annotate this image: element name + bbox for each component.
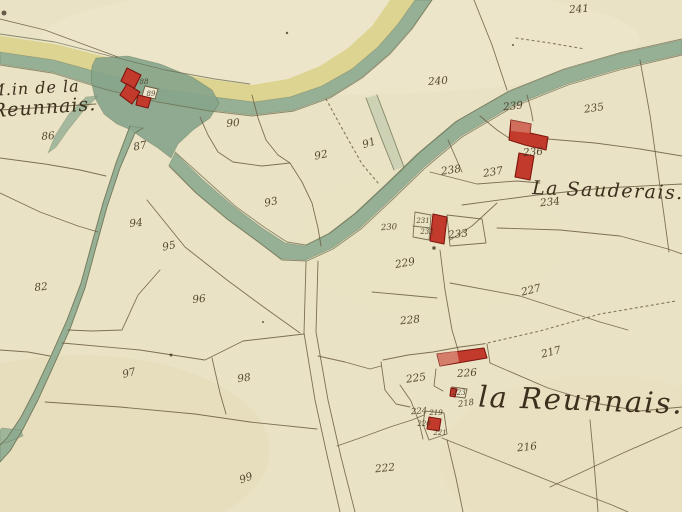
- map-stage: M.in de laReunnais.La Sauderais.la Reunn…: [0, 0, 682, 512]
- parcel-number-231: 231: [415, 217, 429, 225]
- cadastral-map: M.in de laReunnais.La Sauderais.la Reunn…: [0, 0, 682, 512]
- parcel-number-82: 82: [34, 281, 49, 294]
- ink-speck: [170, 354, 173, 357]
- ink-speck: [2, 11, 7, 16]
- parcel-number-89: 89: [147, 90, 156, 98]
- parcel-number-221: 221: [432, 429, 446, 437]
- parcel-number-241: 241: [568, 3, 590, 16]
- parcel-number-98: 98: [237, 371, 252, 385]
- parcel-number-224: 224: [410, 406, 428, 417]
- parcel-number-226: 226: [456, 367, 478, 380]
- parcel-number-96: 96: [192, 293, 207, 306]
- place-label: la Reunnais.: [478, 380, 682, 421]
- parcel-number-233: 233: [446, 227, 468, 241]
- parcel-number-236: 236: [522, 146, 544, 159]
- parcel-number-219: 219: [428, 409, 443, 417]
- ink-speck: [432, 246, 436, 250]
- parcel-number-216: 216: [515, 440, 537, 454]
- parcel-number-87: 87: [132, 139, 148, 153]
- parcel-number-222: 222: [373, 461, 395, 475]
- parcel-number-234: 234: [538, 195, 560, 209]
- ink-speck: [286, 32, 288, 34]
- parcel-number-232: 232: [419, 228, 434, 236]
- parcel-number-88: 88: [140, 78, 149, 86]
- parcel-number-94: 94: [129, 217, 144, 230]
- parcel-number-223: 223: [451, 389, 466, 397]
- parcel-number-90: 90: [226, 117, 240, 130]
- ink-speck: [512, 44, 514, 46]
- parcel-number-240: 240: [427, 75, 449, 88]
- parcel-number-220: 220: [416, 420, 431, 428]
- parcel-number-86: 86: [41, 130, 55, 143]
- ink-speck: [262, 321, 264, 323]
- parcel-number-230: 230: [380, 222, 398, 233]
- parcel-number-228: 228: [398, 313, 420, 327]
- parcel-number-239: 239: [501, 99, 523, 113]
